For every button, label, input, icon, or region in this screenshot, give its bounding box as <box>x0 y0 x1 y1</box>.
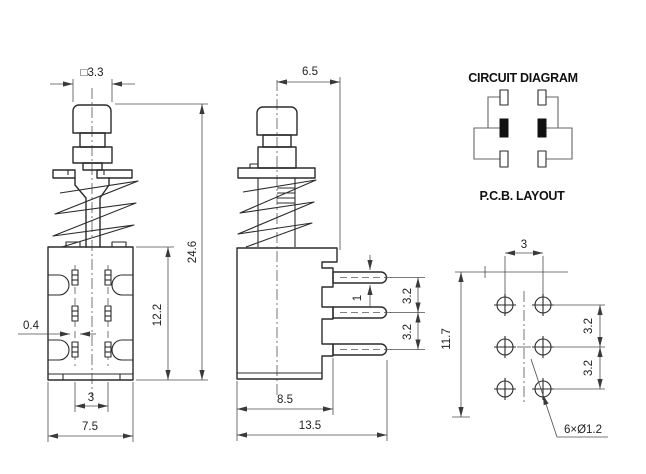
dim-label-total-depth: 13.5 <box>299 420 321 432</box>
circuit-terminal-common <box>538 119 546 137</box>
dim-label-pin-spacing: 3 <box>88 392 94 404</box>
front-body-tab-right <box>112 242 126 247</box>
circuit-diagram: CIRCUIT DIAGRAM <box>468 71 577 167</box>
circuit-wiring-right <box>546 97 572 159</box>
dim-label-pin-width: 0.4 <box>23 320 40 332</box>
dim-label-row-pitch-lower: 3.2 <box>583 360 595 376</box>
pcb-layout: P.C.B. LAYOUT 11.7 3 3.2 3.2 6×Ø1. <box>441 189 608 437</box>
front-funnel-right <box>100 178 109 247</box>
dim-label-total-height: 24.6 <box>187 241 199 263</box>
front-pin <box>72 342 78 357</box>
front-notch-right-lower <box>112 340 133 360</box>
circuit-terminal <box>500 90 508 105</box>
circuit-terminal <box>538 151 546 167</box>
circuit-terminal-common <box>500 119 508 137</box>
front-pin <box>105 342 111 357</box>
front-button-base <box>73 147 112 163</box>
dim-label-button-width: □3.3 <box>81 67 104 79</box>
dim-label-pin-thickness: 1 <box>352 295 364 301</box>
front-right-wing <box>97 170 132 178</box>
drawing-svg: □3.3 24.6 12.2 0.4 3 7.5 <box>0 0 646 474</box>
front-pin <box>105 306 111 321</box>
front-pin <box>72 306 78 321</box>
dim-label-col-spacing: 3 <box>521 239 527 251</box>
dim-label-stem-to-edge: 6.5 <box>302 66 318 78</box>
front-view: □3.3 24.6 12.2 0.4 3 7.5 <box>18 67 208 442</box>
circuit-diagram-title: CIRCUIT DIAGRAM <box>468 71 577 85</box>
front-notch-right-upper <box>112 275 133 295</box>
circuit-terminal <box>538 90 546 105</box>
circuit-terminal <box>500 151 508 167</box>
pcb-hole <box>494 378 516 400</box>
pcb-hole <box>532 336 554 358</box>
front-notch-left-upper <box>48 275 69 295</box>
pcb-hole <box>494 336 516 358</box>
front-left-wing <box>53 170 75 178</box>
front-spring <box>53 181 138 247</box>
pcb-layout-title: P.C.B. LAYOUT <box>479 189 565 203</box>
leader-arrow <box>543 395 557 437</box>
dim-label-pin-pitch-upper: 3.2 <box>402 288 414 304</box>
side-flange <box>238 168 315 178</box>
dim-label-pcb-height: 11.7 <box>441 328 453 350</box>
front-funnel-left <box>75 178 86 247</box>
dim-label-row-pitch-upper: 3.2 <box>583 318 595 334</box>
front-button-neck <box>80 133 105 147</box>
dim-label-body-width: 7.5 <box>82 421 98 433</box>
front-pin <box>72 270 78 285</box>
technical-drawing-canvas: □3.3 24.6 12.2 0.4 3 7.5 <box>0 0 646 474</box>
dim-label-body-height: 12.2 <box>152 304 164 326</box>
dim-label-pin-pitch-lower: 3.2 <box>402 324 414 340</box>
side-body <box>237 248 337 379</box>
front-pin <box>105 270 111 285</box>
side-view: 6.5 1 3.2 3.2 8.5 13.5 <box>237 66 425 441</box>
front-notch-left-lower <box>48 340 69 360</box>
pcb-hole <box>532 294 554 316</box>
circuit-wiring-left <box>474 97 500 159</box>
front-body-tab-left <box>66 242 80 247</box>
front-shaft <box>83 163 102 170</box>
dim-label-body-depth: 8.5 <box>277 394 293 406</box>
pcb-hole <box>494 294 516 316</box>
pcb-hole <box>532 378 554 400</box>
dim-label-hole-note: 6×Ø1.2 <box>564 424 602 436</box>
